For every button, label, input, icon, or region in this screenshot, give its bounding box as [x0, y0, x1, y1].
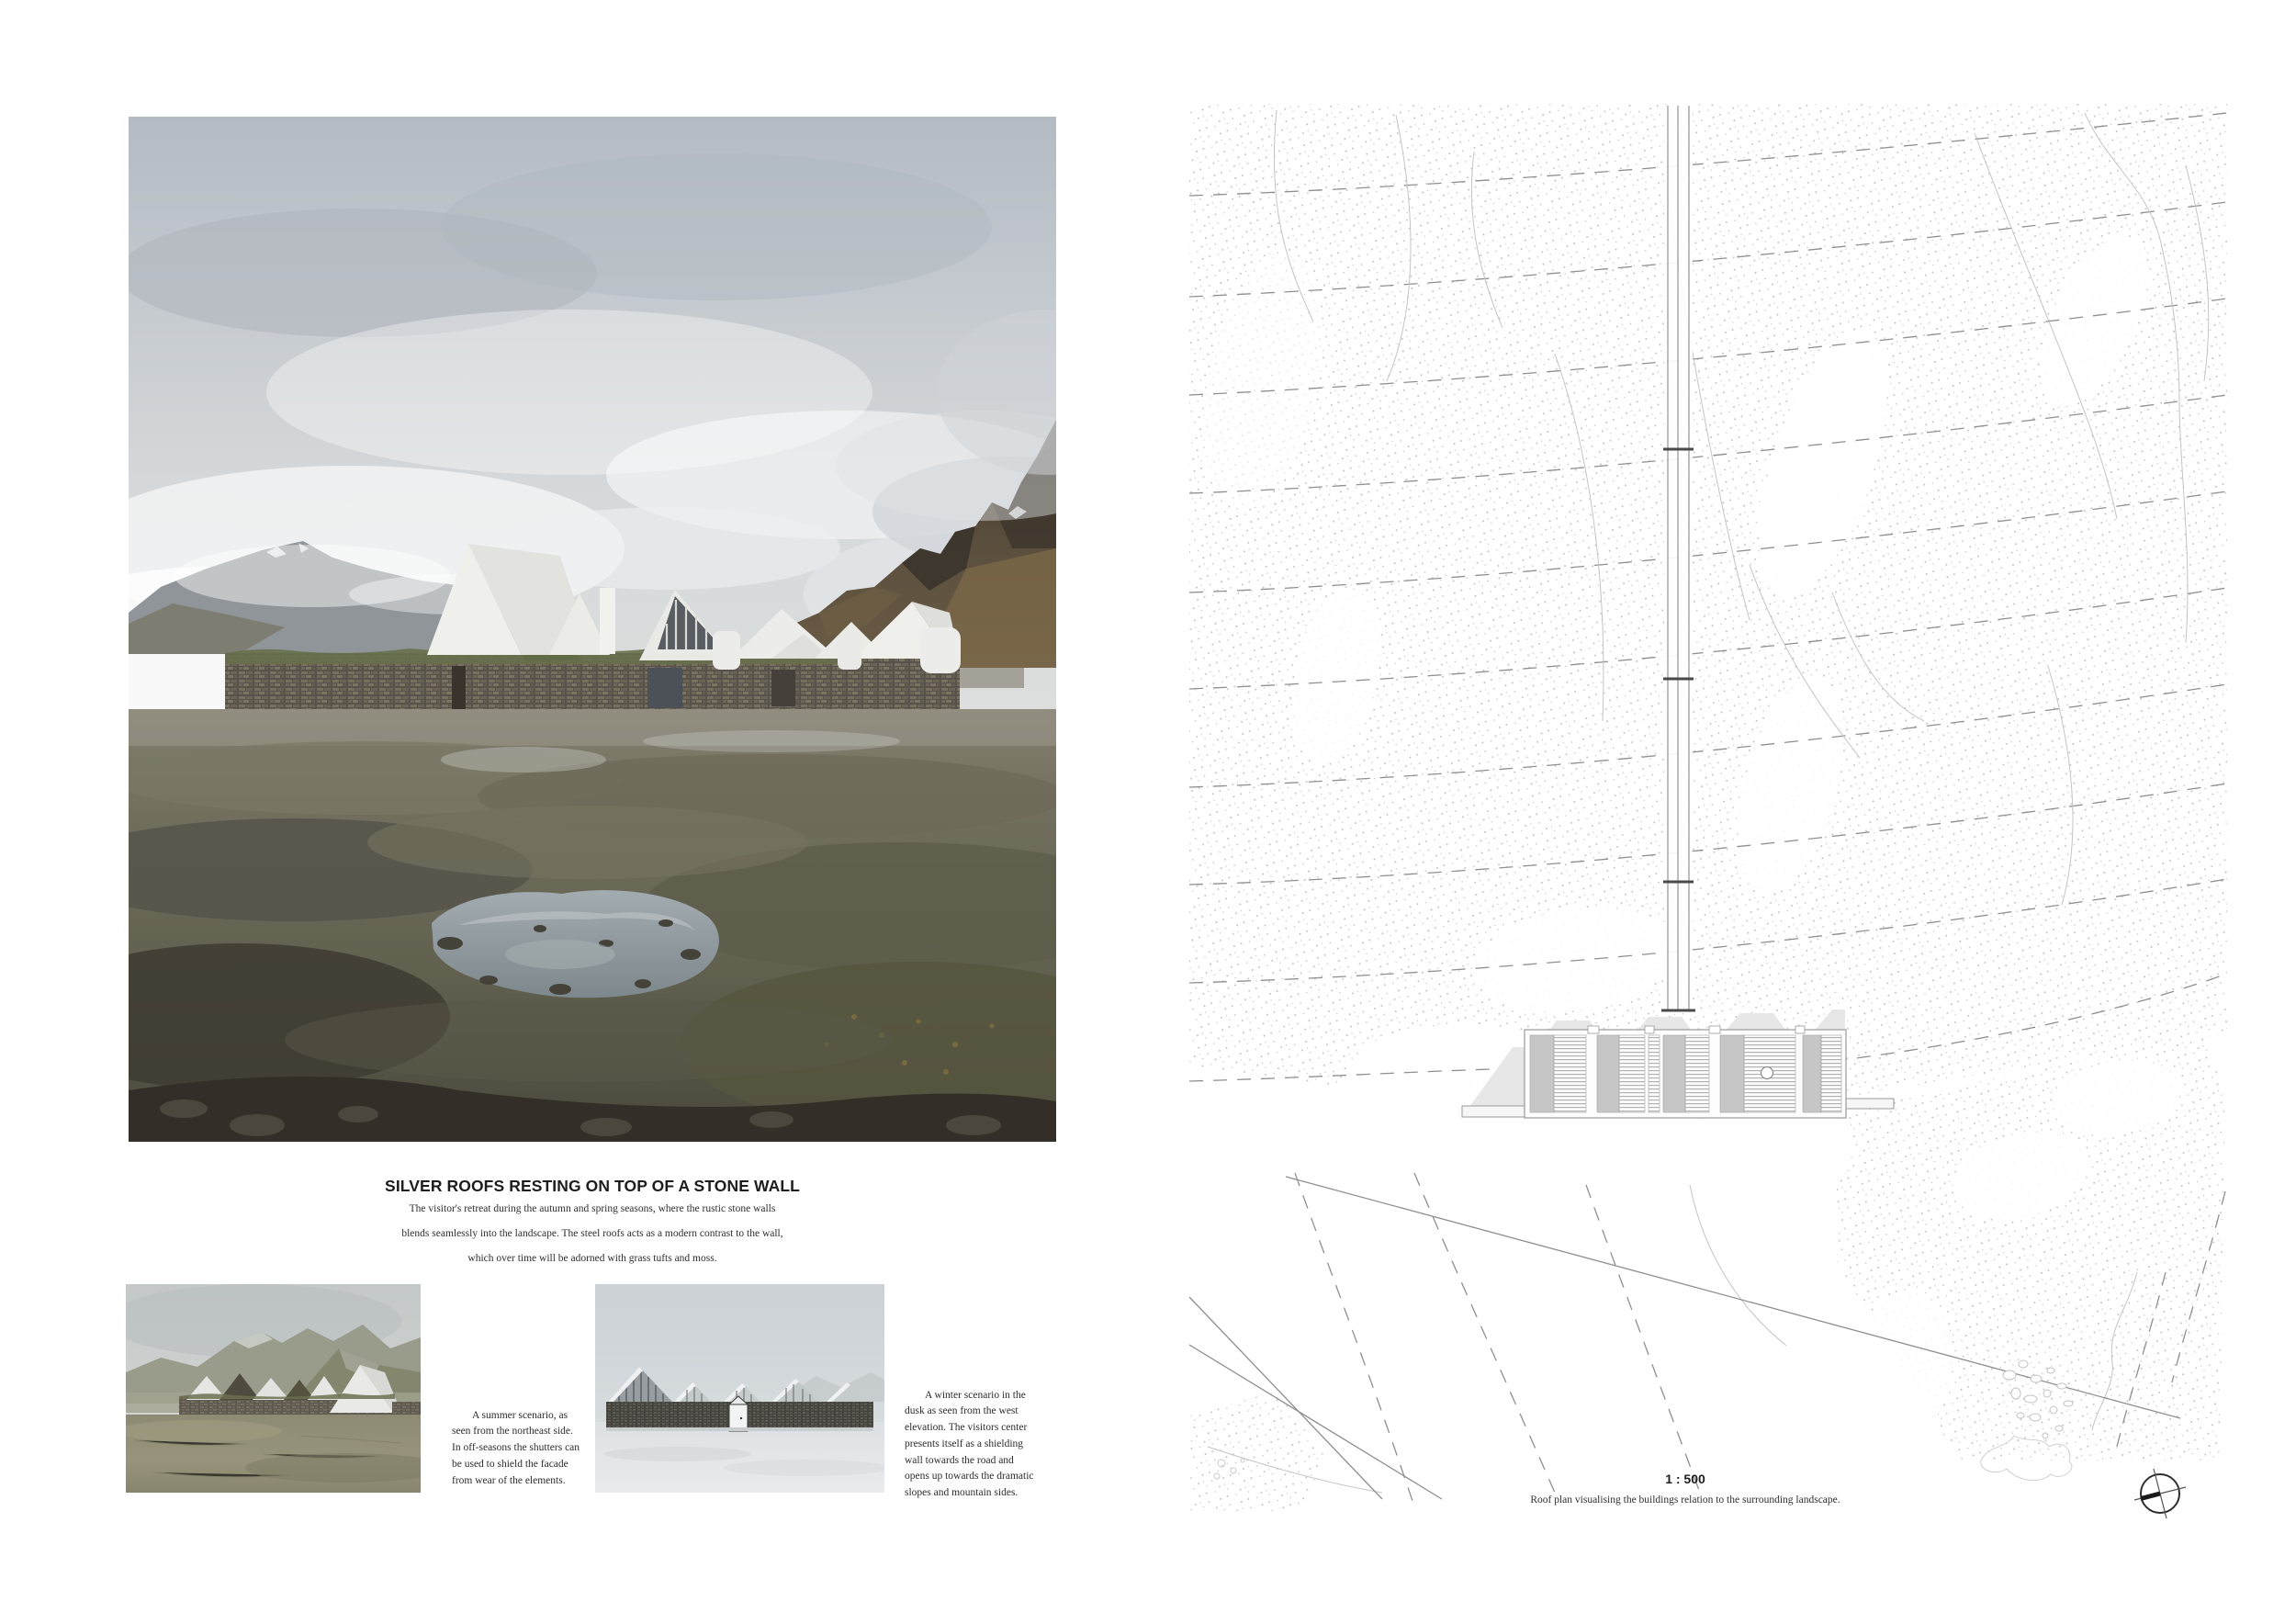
- presentation-board: SILVER ROOFS RESTING ON TOP OF A STONE W…: [0, 0, 2296, 1624]
- access-road: [1661, 106, 1695, 1013]
- body-line: which over time will be adorned with gra…: [129, 1246, 1056, 1271]
- summer-scene: [126, 1284, 421, 1493]
- plan-caption: Roof plan visualising the buildings rela…: [1189, 1494, 2181, 1506]
- body-line: The visitor's retreat during the autumn …: [129, 1197, 1056, 1222]
- plan-scale-label: 1 : 500: [1189, 1472, 2181, 1486]
- winter-scene: [595, 1284, 884, 1493]
- body-line: blends seamlessly into the landscape. Th…: [129, 1222, 1056, 1246]
- main-render-scene: [129, 117, 1056, 1142]
- site-plan: [1189, 78, 2227, 1525]
- building-roof-plan: [1462, 1026, 1894, 1118]
- rooflight: [1761, 1067, 1773, 1079]
- site-plan-drawing: [1189, 78, 2227, 1525]
- main-render-image: [129, 117, 1056, 1142]
- winter-render-image: [595, 1284, 884, 1493]
- main-title: SILVER ROOFS RESTING ON TOP OF A STONE W…: [129, 1177, 1056, 1196]
- summer-caption: A summer scenario, as seen from the nort…: [452, 1408, 580, 1490]
- entrance-door: [729, 1396, 748, 1431]
- main-body-text: The visitor's retreat during the autumn …: [129, 1197, 1056, 1271]
- winter-caption: A winter scenario in the dusk as seen fr…: [905, 1388, 1039, 1503]
- moorland-foreground: [129, 709, 1056, 1142]
- summer-render-image: [126, 1284, 421, 1493]
